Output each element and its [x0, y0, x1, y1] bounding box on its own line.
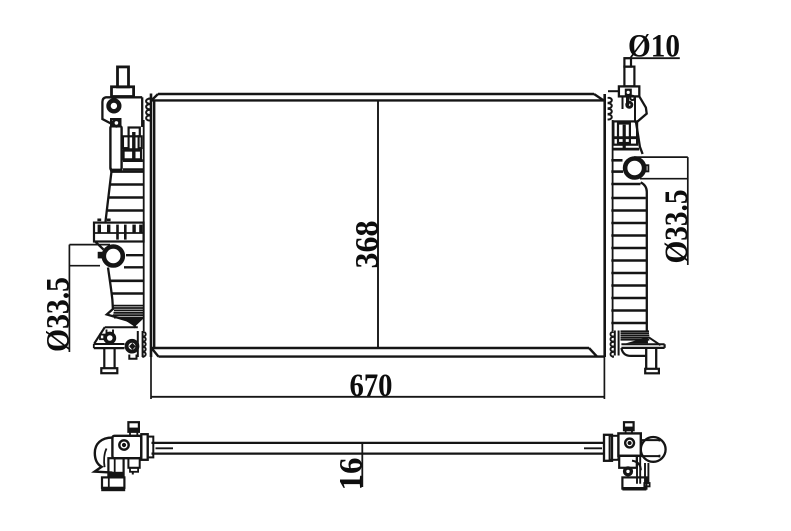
svg-text:Ø10: Ø10	[628, 29, 680, 65]
svg-text:Ø33.5: Ø33.5	[41, 277, 77, 352]
svg-text:670: 670	[350, 368, 393, 404]
svg-text:16: 16	[333, 458, 369, 491]
svg-text:Ø33.5: Ø33.5	[659, 190, 695, 264]
svg-text:368: 368	[350, 221, 386, 269]
